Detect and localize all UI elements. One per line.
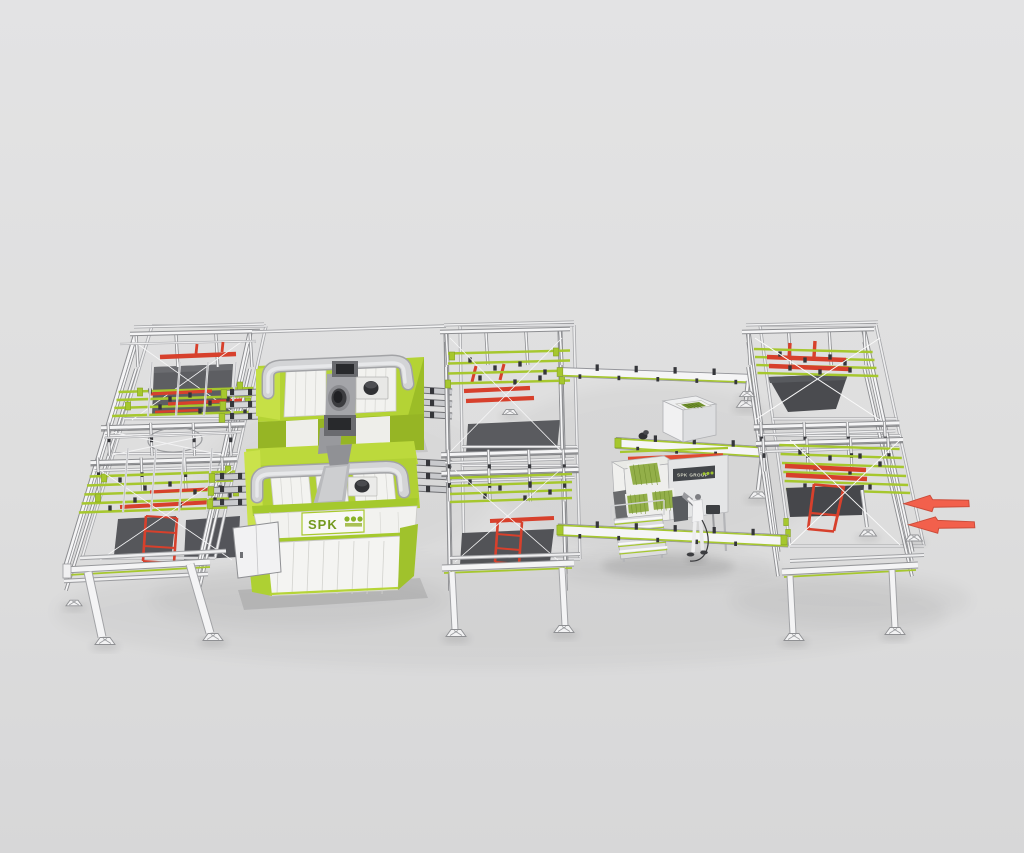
svg-text:SPK: SPK xyxy=(308,517,338,532)
